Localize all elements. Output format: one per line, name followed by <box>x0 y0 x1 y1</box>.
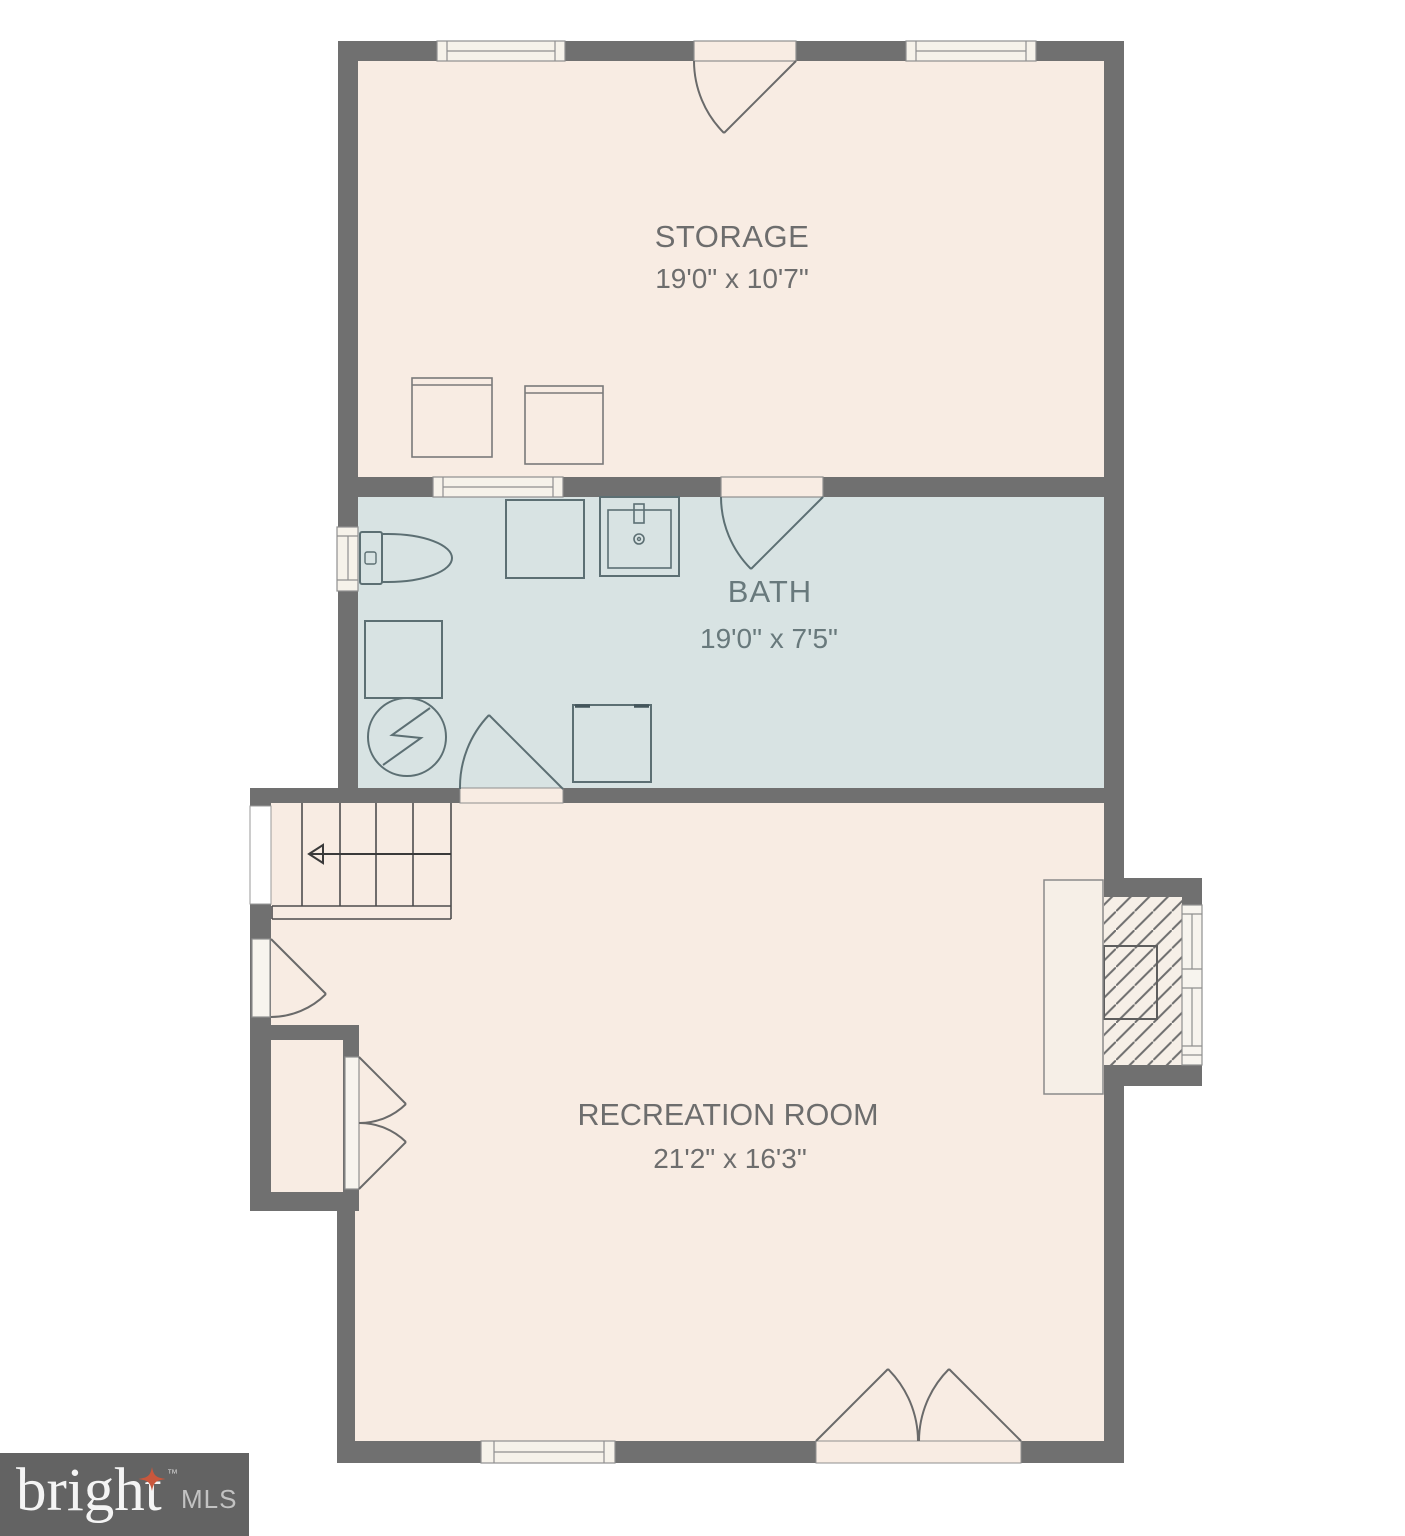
svg-text:MLS: MLS <box>181 1484 237 1514</box>
svg-text:™: ™ <box>167 1468 178 1480</box>
svg-text:bright: bright <box>16 1457 162 1524</box>
svg-text:21'2" x 16'3": 21'2" x 16'3" <box>653 1143 807 1174</box>
svg-text:19'0" x 10'7": 19'0" x 10'7" <box>655 263 809 294</box>
svg-text:RECREATION ROOM: RECREATION ROOM <box>577 1098 878 1132</box>
svg-text:STORAGE: STORAGE <box>655 219 810 254</box>
svg-text:19'0" x 7'5": 19'0" x 7'5" <box>700 623 838 654</box>
svg-text:BATH: BATH <box>728 574 812 609</box>
